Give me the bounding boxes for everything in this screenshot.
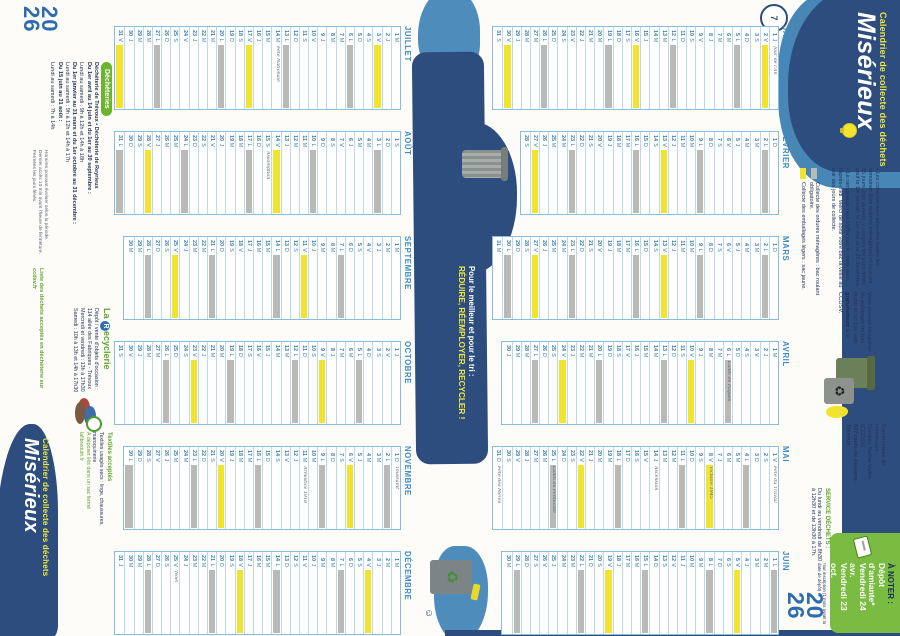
- weekday-letter: J: [226, 456, 234, 464]
- empty-day: [661, 570, 667, 633]
- day-number: 15: [641, 342, 649, 351]
- empty-day: [596, 45, 602, 108]
- day-cell: 6L: [345, 27, 354, 109]
- day-cell: 2V: [760, 27, 769, 109]
- day-cell: 22L: [576, 552, 585, 634]
- empty-day: [743, 150, 749, 213]
- weekday-letter: V: [568, 36, 576, 44]
- day-number: 21: [586, 237, 594, 246]
- day-cell: 10S: [686, 27, 695, 109]
- weekday-letter: L: [678, 456, 686, 464]
- empty-day: [329, 465, 335, 528]
- weekday-letter: M: [263, 246, 271, 254]
- empty-day: [227, 255, 233, 318]
- weekday-letter: V: [153, 456, 161, 464]
- day-cell: 20J: [216, 132, 225, 214]
- weekday-letter: D: [190, 141, 198, 149]
- day-number: 28: [144, 447, 152, 456]
- footer-title-block: Calendrier de collecte des déchets Misér…: [21, 438, 50, 628]
- empty-day: [725, 465, 731, 528]
- day-number: 21: [586, 447, 594, 456]
- day-number: 13: [282, 27, 290, 36]
- weekday-letter: D: [135, 456, 143, 464]
- month-août: AOÛT1S2D3L4M5M6J7V8S9D10L11M12M13J14V15S…: [114, 131, 412, 215]
- household-waste-marker: [633, 255, 639, 318]
- day-cell: 16M: [253, 237, 262, 319]
- day-number: 10: [687, 237, 695, 246]
- weekday-letter: L: [208, 246, 216, 254]
- textiles-block: Textiles acceptés Textiles usagés secs :…: [77, 432, 112, 528]
- day-cell: 29S: [134, 132, 143, 214]
- weekday-letter: D: [217, 246, 225, 254]
- recycling-marker: [633, 45, 639, 108]
- household-waste-marker: [347, 45, 353, 108]
- month-days: 1D2L3M4M5J6V7S8D9L10M11M12J13V14S15D16L1…: [492, 236, 779, 320]
- weekday-letter: J: [650, 456, 658, 464]
- day-cell: 3V: [750, 342, 759, 424]
- empty-day: [338, 45, 344, 108]
- weekday-letter: S: [135, 141, 143, 149]
- day-number: 9: [696, 342, 704, 351]
- day-cell: 11V: [299, 552, 308, 634]
- day-number: 7: [337, 27, 345, 36]
- day-cell: 15M: [262, 27, 271, 109]
- scanned-calendar-page: Calendrier de collecte des déchets Misér…: [0, 0, 900, 636]
- day-cell: 14D: [649, 552, 658, 634]
- day-number: 8: [328, 447, 336, 456]
- day-cell: 24S: [180, 342, 189, 424]
- day-number: 12: [669, 27, 677, 36]
- empty-day: [651, 150, 657, 213]
- household-waste-marker: [374, 150, 380, 213]
- holiday-note: Toussaint: [394, 466, 399, 528]
- empty-day: [292, 465, 298, 528]
- weekday-letter: S: [226, 561, 234, 569]
- weekday-letter: J: [502, 351, 511, 359]
- weekday-letter: J: [282, 141, 290, 149]
- empty-day: [374, 360, 380, 423]
- day-number: 10: [309, 237, 317, 246]
- day-number: 7: [337, 552, 345, 561]
- day-number: 13: [282, 132, 290, 141]
- empty-day: [514, 360, 520, 423]
- day-number: 28: [144, 552, 152, 561]
- empty-day: [725, 45, 731, 108]
- day-number: 11: [678, 342, 686, 351]
- day-number: 9: [696, 552, 704, 561]
- household-waste-marker: [771, 570, 777, 633]
- weekday-letter: M: [650, 36, 658, 44]
- empty-day: [310, 465, 316, 528]
- day-number: 8: [706, 552, 714, 561]
- weekday-letter: L: [153, 36, 161, 44]
- day-number: 15: [263, 237, 271, 246]
- empty-day: [365, 255, 371, 318]
- month-days: 1L2M3M4J5V6S7D8L9M10M11J12V13S14D15L16M1…: [501, 551, 779, 635]
- holiday-note: Victoire 1945: [708, 466, 713, 528]
- day-number: 9: [696, 132, 704, 141]
- day-cell: 3D: [750, 447, 759, 529]
- day-number: 13: [660, 27, 668, 36]
- day-cell: 14MFête Nationale: [271, 27, 280, 109]
- day-number: 28: [522, 27, 530, 36]
- day-number: 13: [660, 342, 668, 351]
- day-cell: 17V: [622, 342, 631, 424]
- day-number: 28: [522, 342, 530, 351]
- recycling-marker: [532, 150, 538, 213]
- legend-yellow-label: Collecte des emballages légers : sac jau…: [800, 182, 806, 290]
- day-cell: 12M: [668, 447, 677, 529]
- day-cell: 22M: [198, 552, 207, 634]
- recycling-marker: [172, 255, 178, 318]
- day-cell: 4L: [741, 447, 750, 529]
- empty-day: [762, 570, 768, 633]
- weekday-letter: M: [291, 141, 299, 149]
- weekday-letter: L: [513, 561, 521, 569]
- day-cell: 8M: [705, 342, 714, 424]
- day-cell: 9D: [317, 132, 326, 214]
- weekday-letter: J: [346, 141, 354, 149]
- empty-day: [329, 255, 335, 318]
- recycling-marker: [347, 465, 353, 528]
- weekday-letter: M: [549, 141, 557, 149]
- day-cell: 12D: [290, 27, 299, 109]
- empty-day: [329, 150, 335, 213]
- dech-period-1: Du 1er avril au 14 juin et du 1er au 30 …: [84, 62, 91, 300]
- weekday-letter: J: [669, 246, 677, 254]
- day-number: 9: [696, 447, 704, 456]
- weekday-letter: V: [318, 351, 326, 359]
- day-number: 30: [502, 342, 511, 351]
- day-number: 16: [254, 132, 262, 141]
- empty-day: [393, 570, 399, 633]
- empty-day: [136, 45, 142, 108]
- day-cell: 9L: [695, 237, 704, 319]
- weekday-letter: D: [493, 456, 502, 464]
- weekday-letter: M: [595, 36, 603, 44]
- weekday-letter: M: [181, 456, 189, 464]
- day-number: 11: [300, 237, 308, 246]
- day-cell: 10M: [308, 447, 317, 529]
- empty-day: [163, 255, 169, 318]
- day-number: 1: [392, 342, 400, 351]
- empty-day: [587, 570, 593, 633]
- weekday-letter: M: [135, 561, 143, 569]
- day-number: 4: [364, 237, 372, 246]
- weekday-letter: S: [660, 561, 668, 569]
- empty-day: [393, 150, 399, 213]
- empty-day: [697, 465, 703, 528]
- weekday-letter: M: [614, 141, 622, 149]
- empty-day: [605, 465, 611, 528]
- household-waste-marker: [356, 360, 362, 423]
- day-number: 19: [226, 342, 234, 351]
- day-cell: 24J: [180, 237, 189, 319]
- day-number: 25: [171, 132, 179, 141]
- recycling-marker: [246, 45, 252, 108]
- ccdsv-address: Communauté de communes Dombes Saône Vall…: [844, 424, 886, 486]
- month-novembre: NOVEMBRE1DToussaint2L3M4M5J6V7S8D9L10M11…: [123, 446, 412, 530]
- service-heading: SERVICE DÉCHETS :: [823, 488, 831, 564]
- weekday-letter: J: [604, 141, 612, 149]
- a-noter-line-2: Vendredi 24 avr.: [848, 563, 867, 627]
- day-cell: 20M: [594, 27, 603, 109]
- weekday-letter: S: [208, 456, 216, 464]
- day-number: 6: [724, 342, 732, 351]
- day-cell: 2M: [760, 552, 769, 634]
- day-number: 31: [115, 27, 124, 36]
- day-cell: 30D: [124, 132, 133, 214]
- day-number: 22: [577, 237, 585, 246]
- weekday-letter: V: [595, 141, 603, 149]
- header-title-block: Calendrier de collecte des déchets Misér…: [853, 12, 888, 177]
- weekday-letter: L: [309, 141, 317, 149]
- day-number: 21: [208, 552, 216, 561]
- smiley-doodle-2: ☺: [423, 608, 434, 618]
- month-avril: AVRIL1M2J3V4S5D6LLundi de Pâques7M8M9J10…: [501, 341, 790, 425]
- day-number: 17: [245, 27, 253, 36]
- day-number: 15: [263, 132, 271, 141]
- empty-day: [384, 255, 390, 318]
- day-cell: 8J: [327, 342, 336, 424]
- day-number: 3: [373, 552, 381, 561]
- weekday-letter: L: [383, 456, 391, 464]
- day-cell: 6V: [723, 237, 732, 319]
- empty-day: [283, 465, 289, 528]
- day-number: 29: [513, 342, 521, 351]
- month-label: AOÛT: [403, 131, 412, 215]
- day-number: 22: [199, 447, 207, 456]
- day-cell: 28L: [143, 552, 152, 634]
- weekday-letter: J: [614, 561, 622, 569]
- household-waste-marker: [596, 360, 602, 423]
- day-number: 25: [171, 447, 179, 456]
- day-cell: 24M: [180, 447, 189, 529]
- day-number: 18: [236, 447, 244, 456]
- weekday-letter: S: [724, 561, 732, 569]
- day-cell: 11M: [677, 132, 686, 214]
- day-cell: 13S: [659, 552, 668, 634]
- empty-day: [163, 465, 169, 528]
- day-cell: 14JAscension: [649, 447, 658, 529]
- day-number: 1: [770, 27, 778, 36]
- day-number: 10: [687, 27, 695, 36]
- day-number: 26: [540, 447, 548, 456]
- weekday-letter: J: [291, 456, 299, 464]
- empty-day: [679, 360, 685, 423]
- day-cell: 23D: [189, 132, 198, 214]
- day-cell: 25S: [170, 27, 179, 109]
- weekday-letter: D: [328, 456, 336, 464]
- day-cell: 19J: [225, 447, 234, 529]
- day-cell: 30M: [502, 552, 511, 634]
- day-number: 21: [586, 132, 594, 141]
- weekday-letter: D: [742, 36, 750, 44]
- weekday-letter: V: [632, 36, 640, 44]
- day-number: 4: [364, 342, 372, 351]
- day-cell: 12D: [668, 342, 677, 424]
- day-number: 19: [226, 27, 234, 36]
- day-number: 3: [373, 342, 381, 351]
- weekday-letter: M: [623, 246, 631, 254]
- empty-day: [255, 360, 261, 423]
- weekday-letter: L: [245, 141, 253, 149]
- day-cell: 21D: [585, 552, 594, 634]
- day-number: 16: [632, 552, 640, 561]
- day-number: 20: [595, 132, 603, 141]
- day-cell: 29M: [134, 237, 143, 319]
- empty-day: [752, 255, 758, 318]
- day-cell: 27D: [152, 552, 161, 634]
- empty-day: [338, 150, 344, 213]
- weekday-letter: J: [309, 246, 317, 254]
- household-waste-marker: [569, 150, 575, 213]
- weekday-letter: M: [309, 456, 317, 464]
- day-cell: 27V: [530, 132, 539, 214]
- empty-day: [523, 45, 529, 108]
- day-cell: 11MArmistice 1918: [299, 447, 308, 529]
- weekday-letter: M: [383, 246, 391, 254]
- weekday-letter: M: [392, 246, 400, 254]
- weekday-letter: L: [291, 351, 299, 359]
- day-cell: 3S: [750, 27, 759, 109]
- year-bottom-digits: 26: [22, 6, 40, 32]
- household-waste-marker: [569, 255, 575, 318]
- day-number: 8: [706, 447, 714, 456]
- day-number: 20: [217, 237, 225, 246]
- recycling-marker: [374, 45, 380, 108]
- day-cell: 1D: [769, 132, 778, 214]
- day-number: 27: [531, 552, 539, 561]
- day-number: 26: [162, 552, 170, 561]
- weekday-letter: S: [595, 561, 603, 569]
- day-cell: 31DFête des Mères: [493, 447, 502, 529]
- day-cell: 29M: [134, 552, 143, 634]
- day-cell: 18L: [613, 447, 622, 529]
- day-cell: 8VVictoire 1945: [705, 447, 714, 529]
- collection-info-bullets: • Les collectes sont assurées toutes les…: [826, 168, 880, 290]
- day-cell: 2D: [382, 132, 391, 214]
- day-number: 1: [770, 447, 778, 456]
- day-number: 28: [144, 27, 152, 36]
- weekday-letter: J: [373, 246, 381, 254]
- day-number: 14: [650, 237, 658, 246]
- day-number: 19: [604, 342, 612, 351]
- day-cell: 14M: [649, 342, 658, 424]
- day-number: 26: [540, 27, 548, 36]
- weekday-letter: D: [254, 141, 262, 149]
- empty-day: [550, 570, 556, 633]
- day-number: 23: [190, 237, 198, 246]
- recycling-marker: [661, 255, 667, 318]
- household-waste-marker: [743, 465, 749, 528]
- weekday-letter: S: [199, 141, 207, 149]
- weekday-letter: M: [337, 351, 345, 359]
- empty-day: [560, 570, 566, 633]
- weekday-letter: D: [715, 561, 723, 569]
- day-cell: 30V: [502, 27, 511, 109]
- household-waste-marker: [116, 150, 123, 213]
- day-number: 11: [300, 132, 308, 141]
- day-cell: 19S: [225, 237, 234, 319]
- day-number: 11: [678, 27, 686, 36]
- day-cell: 16L: [631, 132, 640, 214]
- weekday-letter: J: [770, 36, 778, 44]
- empty-day: [587, 45, 593, 108]
- weekday-letter: M: [687, 246, 695, 254]
- weekday-letter: L: [337, 561, 345, 569]
- day-cell: 22S: [198, 132, 207, 214]
- empty-day: [200, 255, 206, 318]
- weekday-letter: S: [328, 141, 336, 149]
- empty-day: [578, 360, 584, 423]
- day-cell: 15J: [640, 27, 649, 109]
- day-number: 9: [318, 237, 326, 246]
- weekday-letter: S: [531, 561, 539, 569]
- empty-day: [393, 255, 399, 318]
- day-number: 12: [669, 447, 677, 456]
- weekday-letter: J: [153, 141, 161, 149]
- day-number: 17: [245, 552, 253, 561]
- day-number: 26: [540, 552, 548, 561]
- weekday-letter: S: [678, 351, 686, 359]
- day-cell: 15SAssomption: [262, 132, 271, 214]
- weekday-letter: L: [254, 456, 262, 464]
- day-cell: 1M: [769, 342, 778, 424]
- recycling-marker: [560, 360, 566, 423]
- day-cell: 1D: [769, 237, 778, 319]
- day-number: 29: [135, 447, 143, 456]
- weekday-letter: S: [291, 561, 299, 569]
- empty-day: [283, 255, 289, 318]
- empty-day: [550, 360, 556, 423]
- weekday-letter: J: [318, 36, 326, 44]
- day-number: 29: [135, 342, 143, 351]
- day-number: 15: [641, 237, 649, 246]
- empty-day: [670, 150, 676, 213]
- day-cell: 18D: [235, 342, 244, 424]
- day-cell: 17S: [244, 342, 253, 424]
- empty-day: [310, 45, 316, 108]
- day-cell: 12L: [290, 342, 299, 424]
- day-number: 27: [153, 342, 161, 351]
- day-cell: 23J: [189, 27, 198, 109]
- household-waste-marker: [310, 150, 316, 213]
- day-number: 17: [623, 237, 631, 246]
- weekday-letter: D: [513, 246, 521, 254]
- weekday-letter: J: [715, 456, 723, 464]
- weekday-letter: D: [125, 141, 133, 149]
- day-cell: 15L: [640, 552, 649, 634]
- day-number: 9: [318, 27, 326, 36]
- empty-day: [642, 150, 648, 213]
- day-number: 8: [706, 132, 714, 141]
- household-waste-marker: [338, 255, 344, 318]
- weekday-letter: V: [733, 561, 741, 569]
- weekday-letter: V: [364, 246, 372, 254]
- day-cell: 29D: [134, 447, 143, 529]
- day-cell: 19D: [603, 342, 612, 424]
- day-number: 5: [355, 27, 363, 36]
- weekday-letter: S: [493, 36, 502, 44]
- weekday-letter: M: [678, 246, 686, 254]
- weekday-letter: S: [761, 456, 769, 464]
- lightbulb-icon: [843, 124, 856, 137]
- holiday-note: Jour de l'An: [772, 46, 777, 108]
- day-number: 11: [300, 27, 308, 36]
- empty-day: [532, 465, 538, 528]
- day-cell: 4M: [741, 237, 750, 319]
